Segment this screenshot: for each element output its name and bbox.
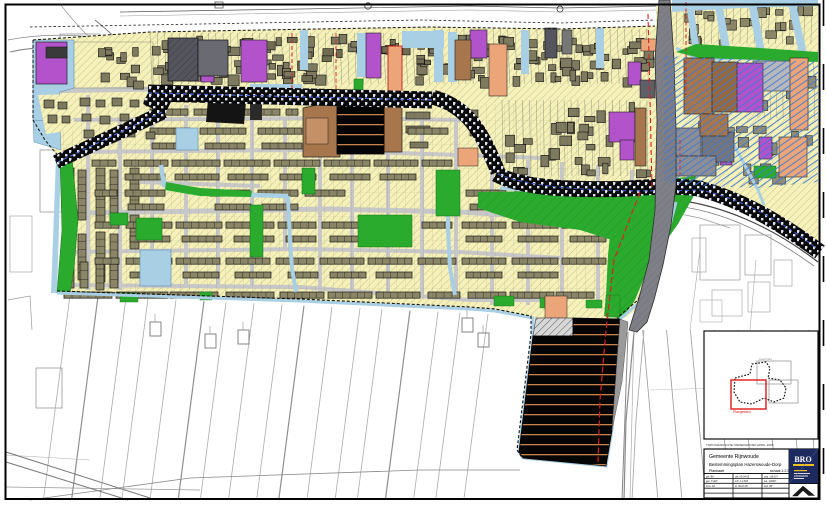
svg-text:Plankaart: Plankaart [709,469,724,473]
svg-text:get. BK: get. BK [706,475,714,478]
svg-text:Gemeente Rijnwoude: Gemeente Rijnwoude [709,454,759,460]
svg-text:proj. 119.007: proj. 119.007 [764,475,778,478]
svg-text:Plangebied: Plangebied [733,410,751,414]
svg-text:st. 06-07-05: st. 06-07-05 [735,485,748,488]
svg-text:dat. 06-04-05: dat. 06-04-05 [735,475,750,478]
svg-text:Kaartblad: Kaartblad [759,357,772,361]
svg-text:ond. BP: ond. BP [764,485,773,488]
svg-text:sch. 1:2.500: sch. 1:2.500 [735,480,749,483]
svg-text:form. A0: form. A0 [706,485,716,488]
svg-text:Bestemmingsplan Hazerswoude-Do: Bestemmingsplan Hazerswoude-Dorp [709,462,782,467]
svg-text:TOPOGRAFISCHE ONDERGROND APRIL: TOPOGRAFISCHE ONDERGROND APRIL 2005 [706,443,774,447]
svg-text:tek. 119007: tek. 119007 [764,480,777,483]
svg-text:gec. TvdW: gec. TvdW [706,480,718,483]
